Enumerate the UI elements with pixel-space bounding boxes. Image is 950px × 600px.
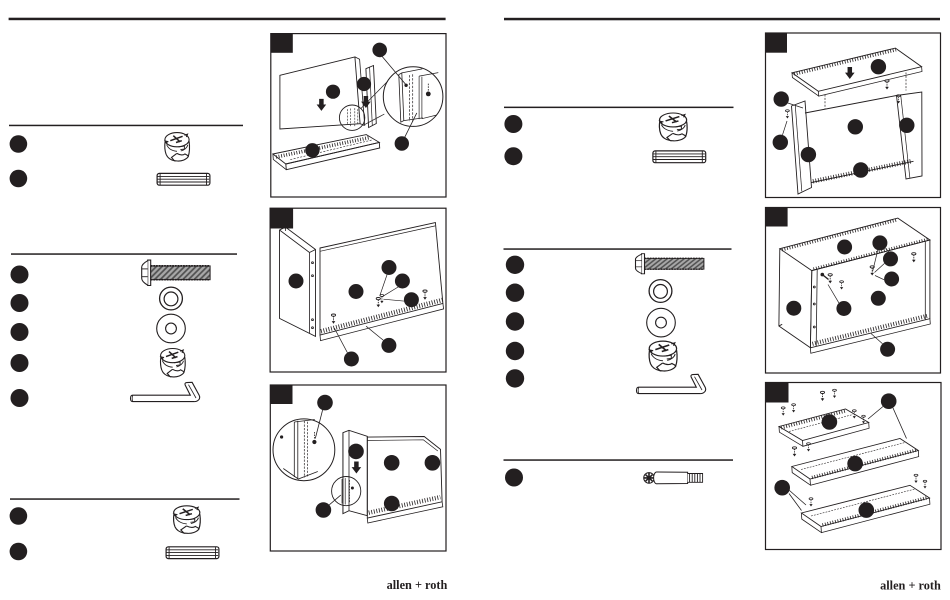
svg-text:allen + roth: allen + roth <box>387 578 448 592</box>
svg-text:allen + roth: allen + roth <box>880 579 941 593</box>
